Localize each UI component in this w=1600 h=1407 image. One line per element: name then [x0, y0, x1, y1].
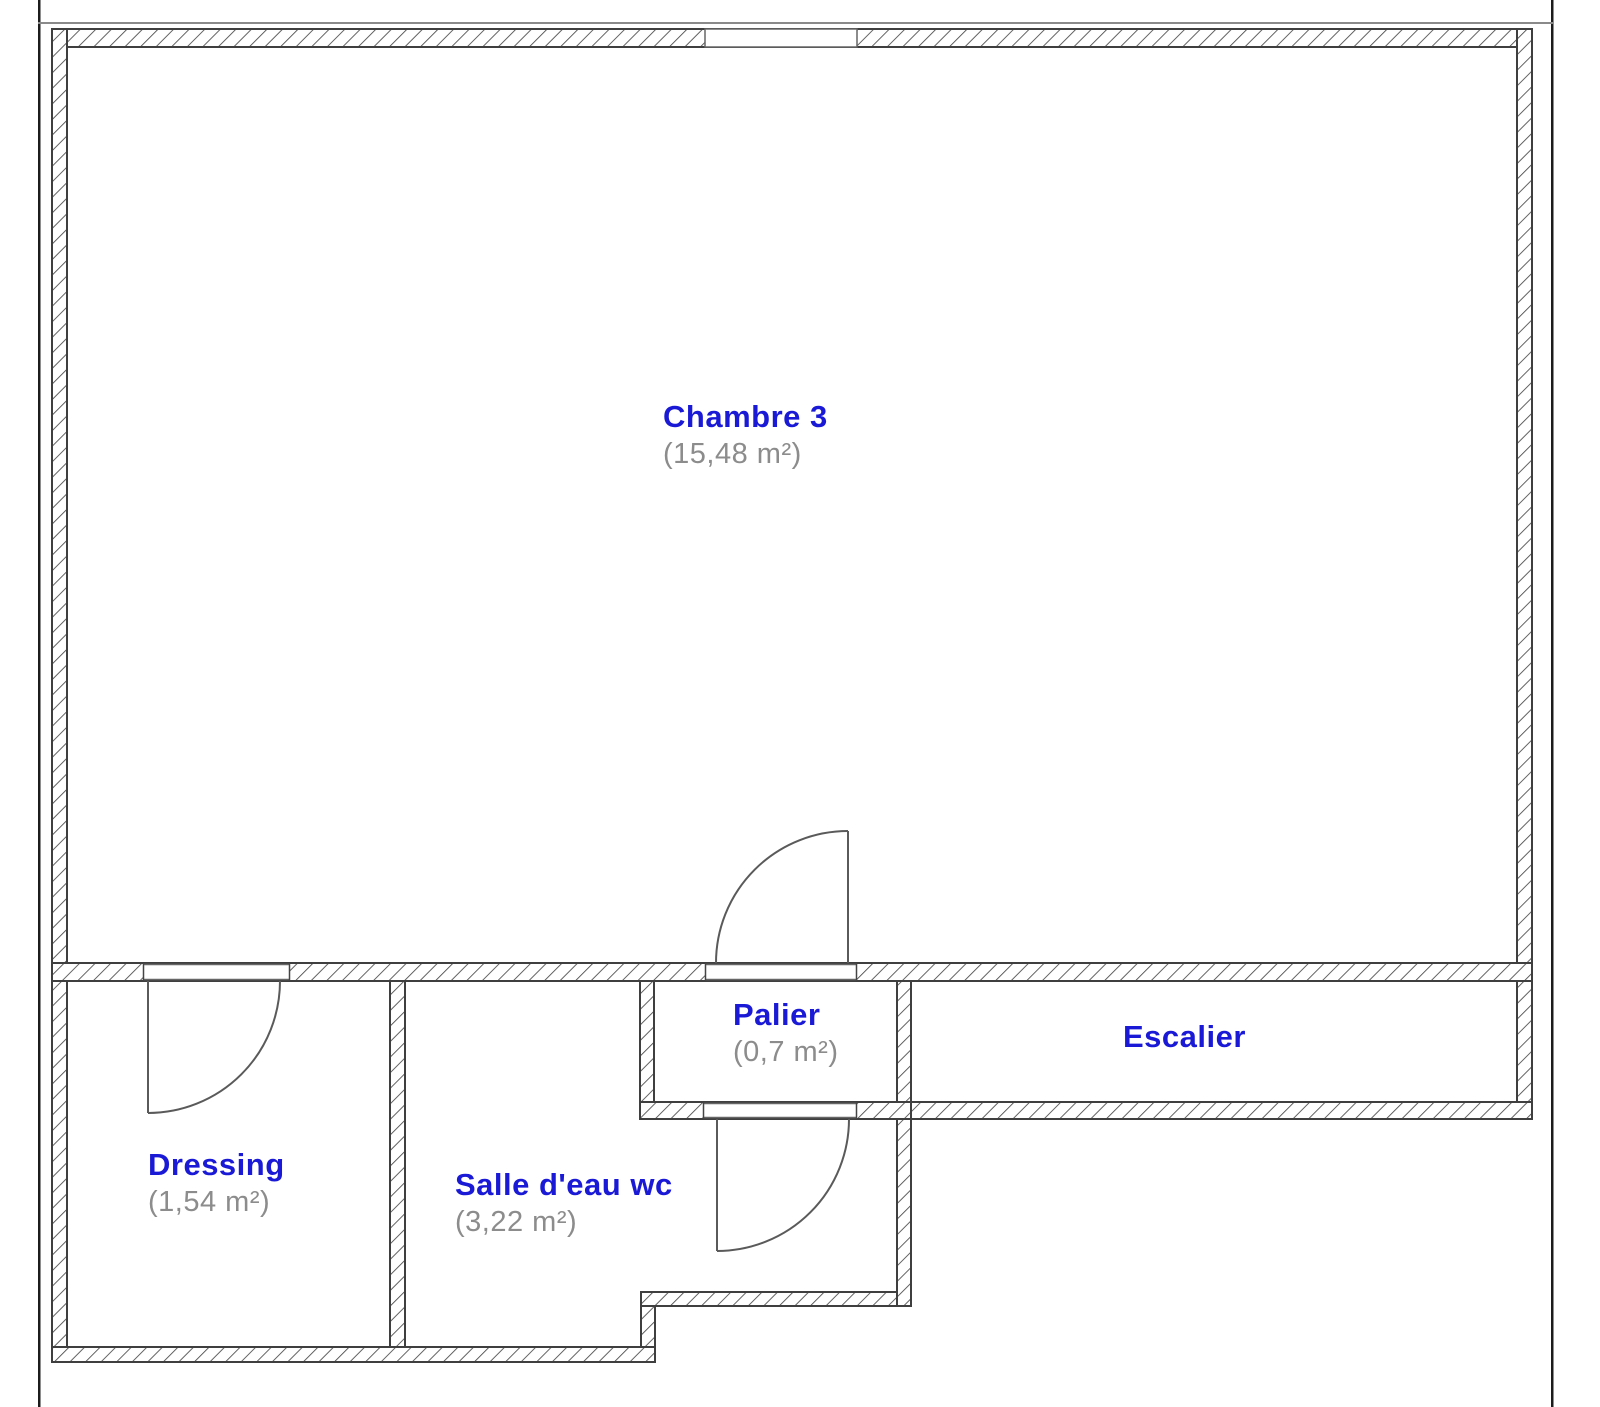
- room-label-salle-eau: Salle d'eau wc (3,22 m²): [455, 1168, 673, 1238]
- wall-openings: [143, 29, 857, 1119]
- room-name-escalier: Escalier: [1123, 1020, 1246, 1055]
- room-area-palier: (0,7 m²): [733, 1036, 839, 1068]
- room-name-chambre3: Chambre 3: [663, 400, 828, 435]
- window-top-wall: [705, 29, 857, 47]
- room-area-dressing: (1,54 m²): [148, 1186, 270, 1218]
- room-label-chambre3: Chambre 3 (15,48 m²): [663, 400, 828, 470]
- frame-line-right: [1551, 0, 1554, 1407]
- room-label-dressing: Dressing (1,54 m²): [148, 1148, 285, 1218]
- wall-corridor-bottom: [641, 1292, 911, 1306]
- door-opening-dressing: [143, 965, 290, 980]
- room-area-salle-eau: (3,22 m²): [455, 1206, 577, 1238]
- floorplan-canvas: Chambre 3 (15,48 m²) Dressing (1,54 m²) …: [0, 0, 1600, 1407]
- door-swing-arc: [717, 1119, 849, 1251]
- wall-escalier-bottom: [897, 1102, 1532, 1119]
- door-opening-palier: [705, 965, 857, 980]
- door-chambre3: [716, 831, 848, 963]
- wall-bottom: [52, 1347, 655, 1362]
- wall-palier-left: [640, 981, 654, 1119]
- room-label-escalier: Escalier: [1123, 1020, 1246, 1055]
- wall-palier-escalier: [897, 981, 911, 1306]
- room-name-palier: Palier: [733, 998, 820, 1033]
- room-name-dressing: Dressing: [148, 1148, 285, 1183]
- door-swing-arc: [716, 831, 848, 963]
- wall-left: [52, 29, 67, 1362]
- door-dressing: [148, 981, 280, 1113]
- frame-line-top: [38, 22, 1553, 24]
- door-opening-salle-eau: [703, 1104, 857, 1118]
- room-label-palier: Palier (0,7 m²): [733, 998, 839, 1068]
- frame-line-left: [38, 0, 41, 1407]
- wall-right: [1517, 29, 1532, 1119]
- room-name-salle-eau: Salle d'eau wc: [455, 1168, 673, 1203]
- room-area-chambre3: (15,48 m²): [663, 438, 802, 470]
- door-swing-arc: [148, 981, 280, 1113]
- door-salle-eau: [717, 1119, 849, 1251]
- wall-dressing-salle: [390, 981, 405, 1347]
